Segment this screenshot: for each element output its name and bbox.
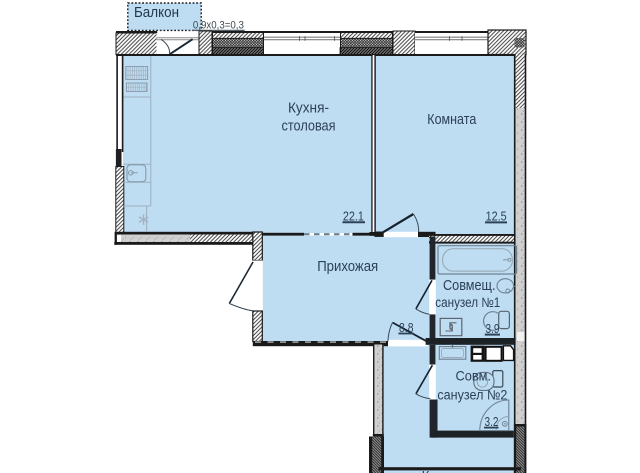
- svg-text:22.1: 22.1: [343, 208, 364, 223]
- svg-text:Совмещ.: Совмещ.: [443, 278, 496, 294]
- svg-text:Комната: Комната: [427, 112, 477, 128]
- svg-text:К: К: [422, 468, 430, 473]
- svg-text:санузел №1: санузел №1: [435, 295, 500, 310]
- svg-text:столовая: столовая: [282, 117, 336, 134]
- svg-text:12.5: 12.5: [486, 209, 507, 224]
- svg-text:санузел №2: санузел №2: [437, 387, 507, 402]
- svg-text:Совм.: Совм.: [456, 368, 492, 384]
- svg-text:Прихожая: Прихожая: [317, 259, 378, 275]
- svg-text:Балкон: Балкон: [134, 5, 179, 21]
- svg-text:Кухня-: Кухня-: [288, 99, 329, 116]
